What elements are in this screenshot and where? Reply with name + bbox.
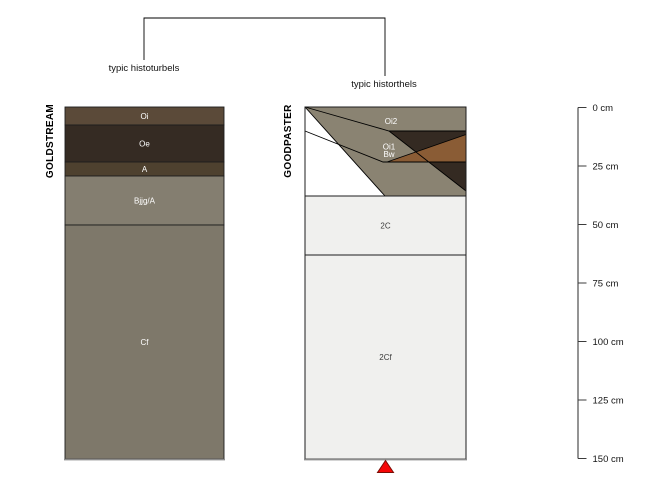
goodpaster-profile: GOODPASTER Oi2 Oi1 Bw 2C 2Cf: [283, 104, 467, 473]
goldstream-label-oe: Oe: [139, 140, 150, 149]
goldstream-label-a: A: [142, 165, 148, 174]
goldstream-profile: GOLDSTREAM Oi Oe A Bjjg/A Cf: [45, 104, 225, 460]
goodpaster-label-oi2: Oi2: [385, 117, 398, 126]
subgroup-label-histoturbels: typic histoturbels: [109, 63, 180, 74]
goldstream-profile-name: GOLDSTREAM: [45, 104, 56, 178]
figure-canvas: typic histoturbels typic historthels GOL…: [0, 0, 650, 500]
goldstream-label-cf: Cf: [141, 338, 150, 347]
depth-tick-0cm: 0 cm: [593, 103, 614, 114]
depth-tick-125cm: 125 cm: [593, 396, 624, 407]
goodpaster-profile-name: GOODPASTER: [283, 104, 294, 178]
goodpaster-label-2cf: 2Cf: [379, 353, 392, 362]
taxonomy-bracket-line: [144, 18, 385, 76]
depth-tick-25cm: 25 cm: [593, 162, 619, 173]
depth-tick-150cm: 150 cm: [593, 454, 624, 465]
goldstream-label-oi: Oi: [141, 112, 149, 121]
depth-tick-50cm: 50 cm: [593, 220, 619, 231]
depth-axis: 0 cm 25 cm 50 cm 75 cm 100 cm 125 cm 150…: [578, 103, 624, 465]
goodpaster-label-bw: Bw: [383, 150, 394, 159]
goodpaster-label-2c: 2C: [380, 222, 390, 231]
red-triangle-marker-icon: [378, 461, 394, 473]
depth-axis-line: [578, 108, 587, 459]
soil-profile-figure: typic histoturbels typic historthels GOL…: [0, 0, 650, 500]
subgroup-label-historthels: typic historthels: [351, 79, 417, 90]
depth-tick-75cm: 75 cm: [593, 279, 619, 290]
goldstream-label-bjjg-a: Bjjg/A: [134, 197, 156, 206]
depth-tick-100cm: 100 cm: [593, 337, 624, 348]
